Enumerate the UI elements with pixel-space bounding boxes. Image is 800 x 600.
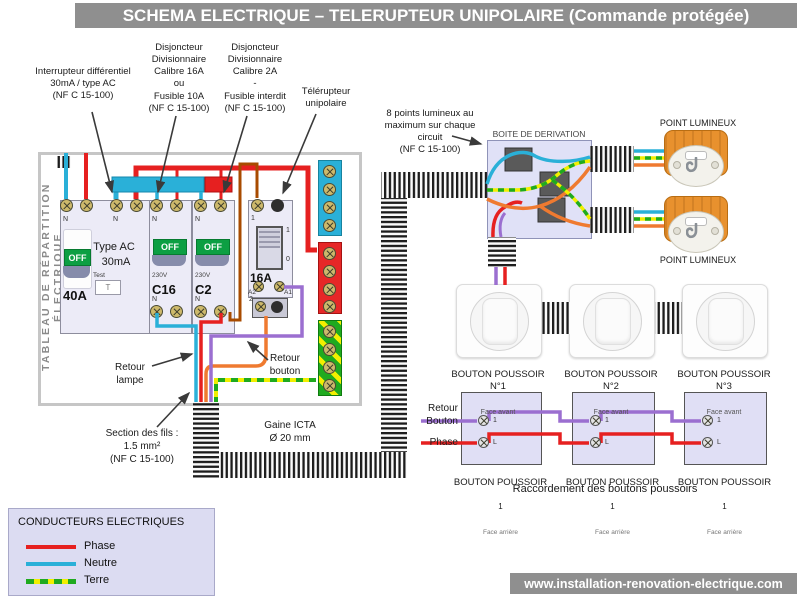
neutral-label: N xyxy=(113,216,118,223)
terminal-screw xyxy=(194,199,207,212)
telerupteur-rating: 16A xyxy=(250,271,272,285)
button-sub: Face avant xyxy=(707,409,742,416)
terminal-screw xyxy=(255,301,266,312)
terminal-screw xyxy=(130,199,143,212)
terminal-screw xyxy=(80,199,93,212)
terminal-screw xyxy=(323,265,336,278)
label-gaine-icta: Gaine ICTA Ø 20 mm xyxy=(247,420,333,446)
terminal-2-label: 2 xyxy=(249,296,253,303)
terminal-1-label: 1 xyxy=(251,215,255,222)
c2-off-switch[interactable]: OFF xyxy=(196,239,230,255)
light-point-wires xyxy=(634,151,664,226)
terminal-screw xyxy=(323,283,336,296)
terminal-screw xyxy=(323,379,336,392)
differential-sensitivity: 30mA xyxy=(92,255,140,269)
push-button-3-label: BOUTON POUSSOIR N°3 Face avant xyxy=(669,357,779,418)
rear-caption: Raccordement des boutons poussoirs xyxy=(455,482,755,496)
terminal-label: L xyxy=(493,439,497,446)
push-button-2-label: BOUTON POUSSOIR N°2 Face avant xyxy=(556,357,666,418)
label-max-points: 8 points lumineux au maximum sur chaque … xyxy=(380,108,480,157)
label-wire-section: Section des fils : 1.5 mm² (NF C 15-100) xyxy=(92,428,192,466)
junction-box-label: BOITE DE DERIVATION xyxy=(480,129,598,140)
button-title: BOUTON POUSSOIR N°1 xyxy=(451,369,544,392)
retour-bouton-wire-label: Retour Bouton xyxy=(404,403,458,429)
terminal-screw xyxy=(150,199,163,212)
push-button-1-label: BOUTON POUSSOIR N°1 Face avant xyxy=(443,357,553,418)
rear-box-3-label: BOUTON POUSSOIR 1 Face arrière xyxy=(671,465,778,538)
terminal-screw xyxy=(214,199,227,212)
test-button[interactable]: T xyxy=(95,280,121,295)
neutral-label: N xyxy=(195,296,200,303)
light-point-1 xyxy=(664,130,726,188)
light-point-2 xyxy=(664,196,726,254)
terminal-screw xyxy=(251,199,264,212)
label-differential: Interrupteur différentiel 30mA / type AC… xyxy=(24,66,142,102)
terminal-a2-label: A2 xyxy=(248,289,256,296)
neutral-label: N xyxy=(63,216,68,223)
legend-phase-line xyxy=(26,545,76,549)
legend-title: CONDUCTEURS ELECTRIQUES xyxy=(18,516,184,528)
legend-neutre-line xyxy=(26,562,76,566)
hook-icon xyxy=(686,157,706,181)
rear-sub: Face arrière xyxy=(483,529,518,536)
schematic-page: SCHEMA ELECTRIQUE – TELERUPTEUR UNIPOLAI… xyxy=(0,0,800,600)
terminal-screw xyxy=(150,305,163,318)
c16-rating: C16 xyxy=(152,282,176,297)
button-title: BOUTON POUSSOIR N°2 xyxy=(564,369,657,392)
terminal-screw xyxy=(323,361,336,374)
label-retour-bouton: Retour bouton xyxy=(261,353,309,379)
junction-box xyxy=(487,140,592,239)
button-sub: Face avant xyxy=(481,409,516,416)
page-title: SCHEMA ELECTRIQUE – TELERUPTEUR UNIPOLAI… xyxy=(75,3,797,28)
terminal-screw xyxy=(60,199,73,212)
dcl-screw xyxy=(711,161,719,169)
test-label: Test xyxy=(93,272,105,279)
push-button-2[interactable] xyxy=(569,284,655,358)
website-url: www.installation-renovation-electrique.c… xyxy=(510,573,797,594)
terminal-label: 1 xyxy=(493,417,497,424)
point-lumineux-label-bottom: POINT LUMINEUX xyxy=(648,255,748,267)
point-lumineux-label-top: POINT LUMINEUX xyxy=(648,118,748,130)
c16-voltage: 230V xyxy=(152,272,167,279)
terminal-screw xyxy=(323,183,336,196)
position-off: 0 xyxy=(286,256,290,263)
legend-phase-label: Phase xyxy=(84,540,115,552)
c16-lever[interactable] xyxy=(152,255,186,266)
button-key[interactable] xyxy=(482,298,518,345)
terminal-screw xyxy=(170,199,183,212)
rear-terminal-L xyxy=(702,437,713,448)
terminal-screw xyxy=(323,343,336,356)
button-sub: Face avant xyxy=(594,409,629,416)
legend-neutre-label: Neutre xyxy=(84,557,117,569)
dcl-screw xyxy=(673,161,681,169)
push-button-1[interactable] xyxy=(456,284,542,358)
rear-num: 1 xyxy=(722,502,726,511)
rear-box-2-label: BOUTON POUSSOIR 1 Face arrière xyxy=(559,465,666,538)
rear-terminal-L xyxy=(478,437,489,448)
terminal-dot xyxy=(271,301,283,313)
terminal-screw xyxy=(323,300,336,313)
neutral-label: N xyxy=(195,216,200,223)
position-on: 1 xyxy=(286,227,290,234)
terminal-label: 1 xyxy=(717,417,721,424)
rear-num: 1 xyxy=(498,502,502,511)
button-key[interactable] xyxy=(595,298,631,345)
label-breaker-2a: Disjoncteur Divisionnaire Calibre 2A - F… xyxy=(214,42,296,115)
button-title: BOUTON POUSSOIR N°3 xyxy=(677,369,770,392)
dcl-screw xyxy=(711,227,719,235)
rear-terminal-L xyxy=(590,437,601,448)
terminal-screw xyxy=(323,247,336,260)
legend-terre-line xyxy=(26,579,76,584)
terminal-label: L xyxy=(717,439,721,446)
c2-rating: C2 xyxy=(195,282,212,297)
c16-off-switch[interactable]: OFF xyxy=(153,239,187,255)
rear-num: 1 xyxy=(610,502,614,511)
neutral-label: N xyxy=(152,296,157,303)
legend-terre-label: Terre xyxy=(84,574,109,586)
terminal-screw xyxy=(170,305,183,318)
differential-off-switch[interactable]: OFF xyxy=(64,249,91,266)
differential-rating: 40A xyxy=(63,288,87,303)
dcl-screw xyxy=(673,227,681,235)
terminal-screw xyxy=(323,325,336,338)
label-retour-lampe: Retour lampe xyxy=(106,362,154,388)
rear-box-1-label: BOUTON POUSSOIR 1 Face arrière xyxy=(447,465,554,538)
neutral-label: N xyxy=(152,216,157,223)
indicator-dot xyxy=(271,199,284,212)
c2-lever[interactable] xyxy=(195,255,229,266)
terminal-screw xyxy=(323,201,336,214)
push-button-3[interactable] xyxy=(682,284,768,358)
label-telerupteur: Télérupteur unipolaire xyxy=(292,86,360,110)
switch-ribs xyxy=(259,229,280,248)
rear-sub: Face arrière xyxy=(595,529,630,536)
differential-type: Type AC xyxy=(88,240,140,254)
differential-lever[interactable] xyxy=(63,266,90,278)
terminal-screw xyxy=(110,199,123,212)
terminal-screw xyxy=(323,219,336,232)
terminal-a1-label: A1 xyxy=(284,289,292,296)
button-feed-wires xyxy=(496,267,505,285)
terminal-screw xyxy=(323,165,336,178)
button-key[interactable] xyxy=(708,298,744,345)
terminal-screw xyxy=(194,305,207,318)
terminal-label: L xyxy=(605,439,609,446)
label-breaker-16a: Disjoncteur Divisionnaire Calibre 16A ou… xyxy=(138,42,220,115)
terminal-screw xyxy=(214,305,227,318)
hook-icon xyxy=(686,223,706,247)
c2-voltage: 230V xyxy=(195,272,210,279)
rear-sub: Face arrière xyxy=(707,529,742,536)
terminal-label: 1 xyxy=(605,417,609,424)
phase-wire-label: Phase xyxy=(404,437,458,450)
